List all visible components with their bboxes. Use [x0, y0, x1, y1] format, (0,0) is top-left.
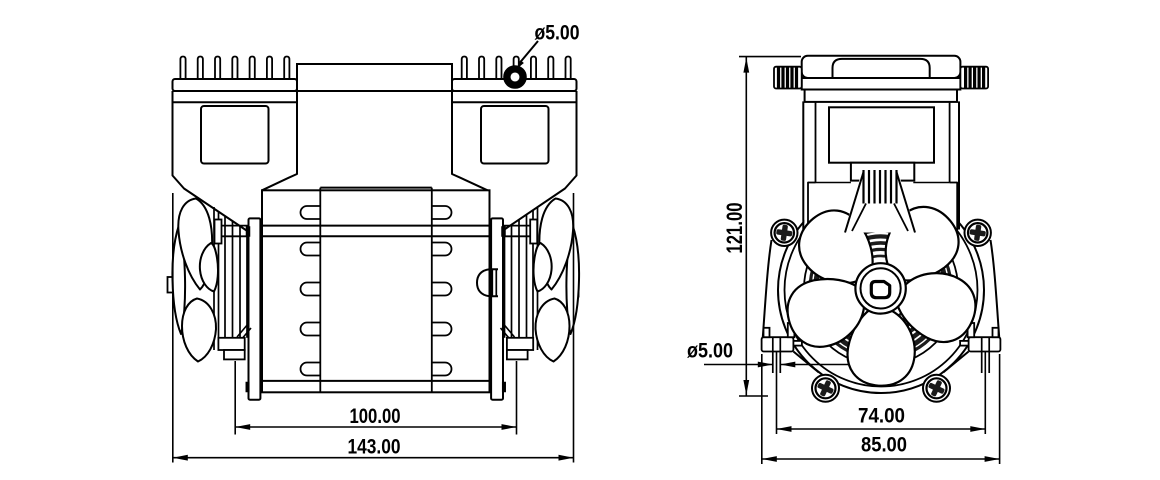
- svg-text:143.00: 143.00: [348, 435, 401, 459]
- svg-text:ø5.00: ø5.00: [535, 21, 580, 45]
- svg-text:85.00: 85.00: [861, 433, 907, 457]
- svg-text:74.00: 74.00: [858, 404, 905, 428]
- svg-text:121.00: 121.00: [722, 203, 747, 254]
- svg-text:ø5.00: ø5.00: [687, 339, 733, 363]
- svg-text:100.00: 100.00: [350, 404, 401, 428]
